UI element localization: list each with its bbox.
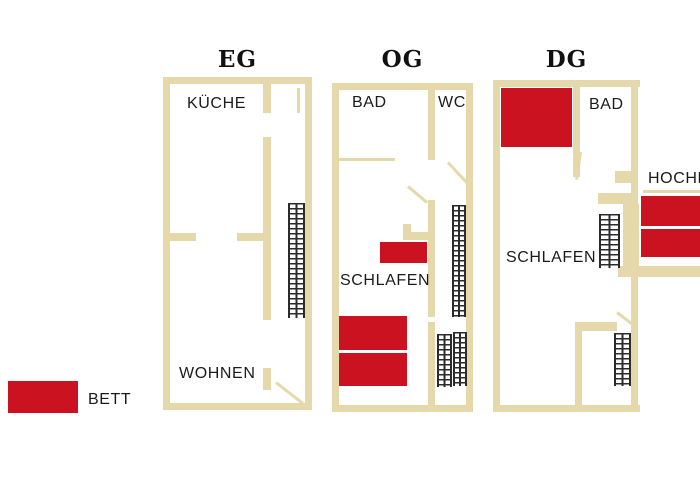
- floor-title-dg: DG: [493, 46, 640, 73]
- wall: [493, 80, 640, 87]
- bed-marker: [501, 88, 572, 147]
- wall: [263, 368, 271, 390]
- legend-bed-swatch: [8, 381, 78, 413]
- wall: [631, 277, 638, 412]
- wall: [163, 403, 312, 410]
- wall: [332, 405, 473, 412]
- wall: [163, 77, 312, 84]
- wall: [263, 137, 271, 320]
- wall: [332, 83, 339, 412]
- wall: [618, 266, 700, 277]
- room-label-schlafen: SCHLAFEN: [340, 272, 430, 290]
- stairs: [452, 205, 466, 317]
- bed-marker: [641, 229, 700, 257]
- legend-label: BETT: [88, 391, 131, 409]
- floor-title-eg: EG: [163, 46, 312, 73]
- bed-marker: [339, 353, 407, 386]
- stairs: [599, 214, 620, 268]
- wall: [493, 405, 640, 412]
- stairs: [453, 332, 467, 386]
- room-label-bad: BAD: [352, 94, 387, 112]
- wall: [403, 232, 428, 240]
- wall: [428, 322, 435, 405]
- partition-line: [339, 158, 395, 161]
- bed-marker: [339, 316, 407, 350]
- room-label-hochbett: HOCHBETT: [648, 170, 700, 188]
- stairs: [288, 203, 305, 318]
- door-swing: [407, 185, 428, 203]
- room-label-schlafen: SCHLAFEN: [506, 249, 596, 267]
- room-label-wohnen: WOHNEN: [179, 365, 255, 383]
- wall: [615, 171, 631, 183]
- room-label-wc: WC: [438, 94, 466, 112]
- wall: [263, 84, 271, 113]
- room-label-bad: BAD: [589, 96, 624, 114]
- floor-title-og: OG: [332, 46, 473, 73]
- bed-marker: [641, 196, 700, 226]
- stairs: [614, 333, 631, 386]
- wall: [428, 200, 435, 317]
- wall: [332, 83, 473, 90]
- partition-line: [643, 190, 700, 193]
- bed-marker: [380, 242, 427, 263]
- door-swing: [275, 381, 304, 404]
- wall: [623, 204, 639, 266]
- wall: [170, 233, 196, 241]
- wall: [631, 80, 638, 193]
- stairs: [437, 334, 452, 387]
- floorplan-canvas: EG KÜCHE WOHNEN OG: [0, 0, 700, 500]
- room-label-kueche: KÜCHE: [187, 95, 246, 113]
- wall: [598, 193, 638, 204]
- wall: [466, 83, 473, 412]
- wall: [582, 322, 617, 331]
- wall: [493, 80, 500, 412]
- door-leaf: [297, 88, 300, 113]
- wall: [305, 77, 312, 410]
- wall: [575, 322, 582, 405]
- wall: [237, 233, 263, 241]
- wall: [428, 90, 435, 160]
- wall: [163, 77, 170, 410]
